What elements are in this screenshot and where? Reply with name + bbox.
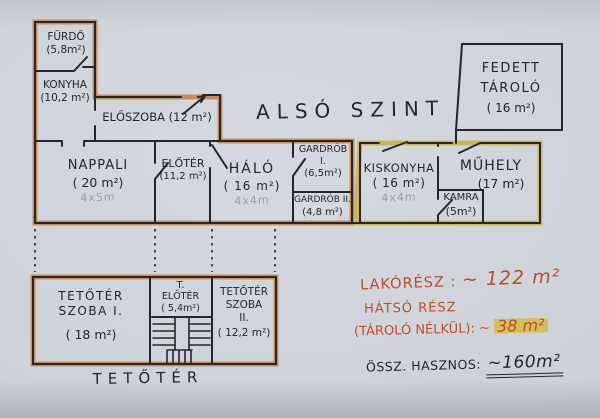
pencil-dimension-note: 4x4m	[362, 190, 436, 207]
staircase-icon	[153, 317, 210, 363]
annotation-value: ~ 122 m²	[462, 266, 561, 291]
room-area: (6,5m²)	[296, 168, 350, 181]
room-numeral: I.	[296, 156, 350, 168]
room-name-line2: SZOBA	[216, 299, 272, 312]
room-name-line2: SZOBA I.	[42, 304, 140, 319]
room-label-muhely: MŰHELY (17 m²)	[446, 158, 536, 192]
projection-dotted-lines	[35, 229, 275, 272]
room-area: (11,2 m²)	[158, 171, 208, 184]
pencil-dimension-note: 4x5m	[48, 189, 148, 207]
room-area: ( 5,4m²)	[152, 303, 209, 314]
room-label-fedett-tarolo: FEDETT TÁROLÓ ( 16 m²)	[468, 59, 554, 118]
room-label-attic-szoba-1: TETŐTÉR SZOBA I. ( 18 m²)	[42, 289, 140, 343]
room-label-furdo: FÜRDŐ (5,8m²)	[38, 31, 94, 58]
room-area: ( 18 m²)	[42, 327, 140, 343]
room-area: (5,8m²)	[38, 44, 94, 57]
annotation-label: LAKÓRÉSZ :	[360, 274, 457, 293]
room-area: ( 16 m²)	[468, 99, 554, 118]
room-name-line1: TETŐTÉR	[216, 286, 272, 299]
floor-plan-sketch-photo: ALSÓ SZINT FÜRDŐ (5,8m²) KONYHA (10,2 m²…	[0, 0, 600, 418]
room-name: FÜRDŐ	[38, 31, 94, 44]
room-numeral: II.	[216, 312, 272, 325]
room-name: GARDRÓB	[296, 144, 350, 156]
annotation-label: ÖSSZ. HASZNOS:	[366, 357, 481, 375]
room-area: ( 16 m²)	[216, 179, 288, 194]
room-label-gardrob-2: GARDRÓB II. (4,8 m²)	[294, 195, 351, 219]
room-area: (10,2 m²)	[35, 92, 95, 105]
room-label-attic-szoba-2: TETŐTÉR SZOBA II. ( 12,2 m²)	[216, 286, 272, 340]
room-name: HÁLÓ	[216, 161, 288, 179]
room-label-nappali: NAPPALI ( 20 m²) 4x5m	[48, 158, 148, 205]
annotation-total-useful-area: ÖSSZ. HASZNOS: ~160m²	[366, 351, 563, 376]
room-area: ( 20 m²)	[48, 175, 148, 191]
room-area: (17 m²)	[446, 176, 536, 192]
room-label-halo: HÁLÓ ( 16 m²) 4x4m	[216, 161, 288, 208]
annotation-rear-part-line1: HÁTSÓ RÉSZ	[364, 300, 457, 317]
annotation-value-highlighted: 38 m²	[494, 315, 548, 335]
attic-title: TETŐTÉR	[88, 368, 208, 389]
room-name-line2: TÁROLÓ	[468, 79, 554, 99]
room-area: ( 16 m²)	[362, 176, 436, 191]
room-label-eloter: ELŐTÉR (11,2 m²)	[158, 157, 208, 184]
annotation-value-underlined: ~160m²	[485, 351, 563, 378]
room-name: KONYHA	[35, 79, 95, 92]
room-name: MŰHELY	[446, 158, 536, 176]
room-area: (5m²)	[440, 205, 482, 219]
room-area: ( 12,2 m²)	[216, 327, 272, 340]
room-label-eloszoba: ELŐSZOBA (12 m²)	[98, 110, 216, 125]
room-name: KISKONYHA	[362, 161, 436, 176]
lower-level-title: ALSÓ SZINT	[256, 96, 446, 124]
room-name-line1: T.	[152, 280, 209, 291]
room-name: KAMRA	[440, 192, 482, 205]
room-area: (12 m²)	[169, 110, 212, 124]
room-label-kiskonyha: KISKONYHA ( 16 m²) 4x4m	[362, 161, 436, 205]
room-name-line1: FEDETT	[468, 59, 554, 79]
room-name-line1: TETŐTÉR	[42, 289, 140, 304]
room-area: (4,8 m²)	[294, 207, 351, 220]
room-label-konyha: KONYHA (10,2 m²)	[35, 79, 95, 106]
room-label-attic-eloter: T. ELŐTÉR ( 5,4m²)	[152, 280, 209, 314]
room-label-gardrob-1: GARDRÓB I. (6,5m²)	[296, 144, 350, 180]
pencil-dimension-note: 4x4m	[216, 193, 288, 210]
room-name-line2: ELŐTÉR	[152, 291, 209, 302]
room-name: NAPPALI	[48, 158, 148, 175]
room-name: ELŐSZOBA	[102, 110, 165, 124]
room-name: ELŐTÉR	[158, 157, 208, 171]
room-label-kamra: KAMRA (5m²)	[440, 192, 482, 219]
room-name: GARDRÓB II.	[294, 195, 351, 207]
